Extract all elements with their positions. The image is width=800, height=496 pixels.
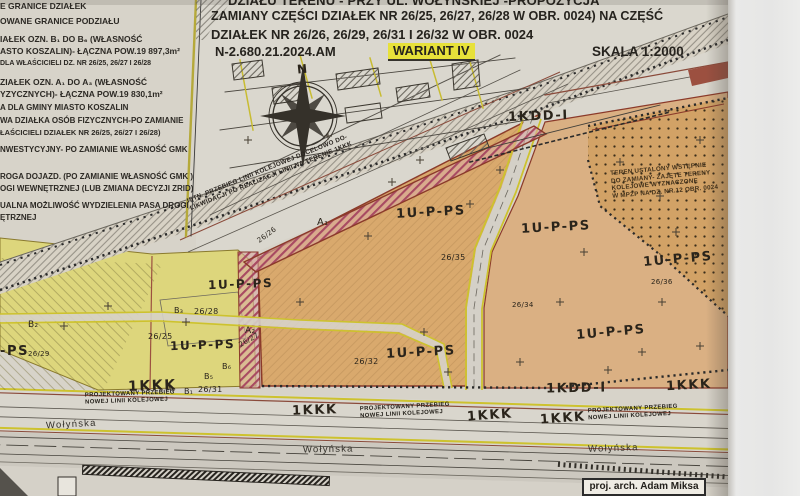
header-title-line-2: ZAMIANY CZĘŚCI DZIAŁEK NR 26/25, 26/27, … <box>211 9 663 23</box>
header-title-line-1: DZIAŁU TERENU - PRZY UL. WOŁYŃSKIEJ -PRO… <box>228 0 600 8</box>
map-label-n: N <box>296 61 309 76</box>
map-label-1u-p-ps: 1U-P-PS <box>208 276 274 292</box>
map-label-b-: B₆ <box>222 362 231 371</box>
map-label-26-34: 26/34 <box>512 301 534 309</box>
legend-line: ASTO KOSZALIN)- ŁĄCZNA POW.19 897,3m² <box>0 46 180 56</box>
map-label-b-: B₅ <box>204 372 213 381</box>
map-label-1kkk: 1KKK <box>666 377 712 394</box>
legend-line: YZYCZNYCH)- ŁĄCZNA POW.19 830,1m² <box>0 89 163 99</box>
legend-line: ROGA DOJAZD. (PO ZAMIANIE WŁASNOŚĆ GMK ) <box>0 172 193 181</box>
legend-line: NWESTYCYJNY- PO ZAMIANIE WŁASNOŚĆ GMK <box>0 145 188 154</box>
map-label-1kkk: 1KKK <box>467 406 514 424</box>
map-label-26-35: 26/35 <box>441 253 466 262</box>
legend-line: DLA WŁAŚCICIELI DZ. NR 26/25, 26/27 I 26… <box>0 60 151 67</box>
map-label-b-: B₂ <box>28 320 38 330</box>
map-label-1u-p-ps: 1U-P-PS <box>170 337 236 353</box>
legend-line: OWANE GRANICE PODZIAŁU <box>0 16 119 26</box>
map-scan: DZIAŁU TERENU - PRZY UL. WOŁYŃSKIEJ -PRO… <box>0 0 728 496</box>
header-title-line-3: DZIAŁEK NR 26/26, 26/29, 26/31 I 26/32 W… <box>211 27 533 42</box>
legend-line: ŁAŚCICIELI DZIAŁEK NR 26/25, 26/27 I 26/… <box>0 128 160 137</box>
map-drawing <box>0 0 728 496</box>
scan-background-strip <box>728 0 800 496</box>
map-label-b-: B₁ <box>184 387 193 396</box>
map-label-26-36: 26/36 <box>651 278 673 286</box>
legend-line: WA DZIAŁKA OSÓB FIZYCZNYCH-PO ZAMIANIE <box>0 116 183 125</box>
legend-line: ĘTRZNEJ <box>0 213 36 222</box>
map-label-1kdd-i: 1KDD-I <box>546 380 607 396</box>
photo-edge-shade <box>706 0 728 496</box>
map-scale: SKALA 1:2000 <box>592 44 684 59</box>
legend-line: OGI WEWNĘTRZNEJ (LUB ZMIANA DECYZJI ZRID… <box>0 184 193 193</box>
map-label-26-29: 26/29 <box>28 350 50 358</box>
street-name-label: Wołyńska <box>303 444 354 456</box>
map-label--ps: -PS <box>0 344 29 359</box>
street-name-label: Wołyńska <box>588 442 639 455</box>
legend-line: IAŁEK OZN. B₁ DO B₆ (WŁASNOŚĆ <box>0 34 142 44</box>
legend-line: A DLA GMINY MIASTO KOSZALIN <box>0 103 128 112</box>
legend-line: UALNA MOŻLIWOŚĆ WYDZIELENIA PASA DROGI <box>0 201 189 210</box>
legend-line: E GRANICE DZIAŁEK <box>0 1 86 11</box>
legend-line: ZIAŁEK OZN. A₁ DO A₃ (WŁASNOŚĆ <box>0 77 147 87</box>
variant-highlight: WARIANT IV <box>388 43 475 61</box>
map-label-26-31: 26/31 <box>198 385 223 394</box>
scanned-plan-photo: DZIAŁU TERENU - PRZY UL. WOŁYŃSKIEJ -PRO… <box>0 0 800 496</box>
map-label-1kdd-i: 1KDD-I <box>508 108 569 125</box>
architect-credit: proj. arch. Adam Miksa <box>582 478 706 496</box>
map-label-1kkk: 1KKK <box>540 409 587 427</box>
map-label-b-: B₃ <box>174 306 183 315</box>
map-label-1kkk: 1KKK <box>292 402 338 419</box>
case-number: N-2.680.21.2024.AM <box>215 44 336 59</box>
map-label-26-32: 26/32 <box>354 357 379 366</box>
map-label-a-: A₁ <box>317 217 328 228</box>
map-label-26-28: 26/28 <box>194 307 219 316</box>
